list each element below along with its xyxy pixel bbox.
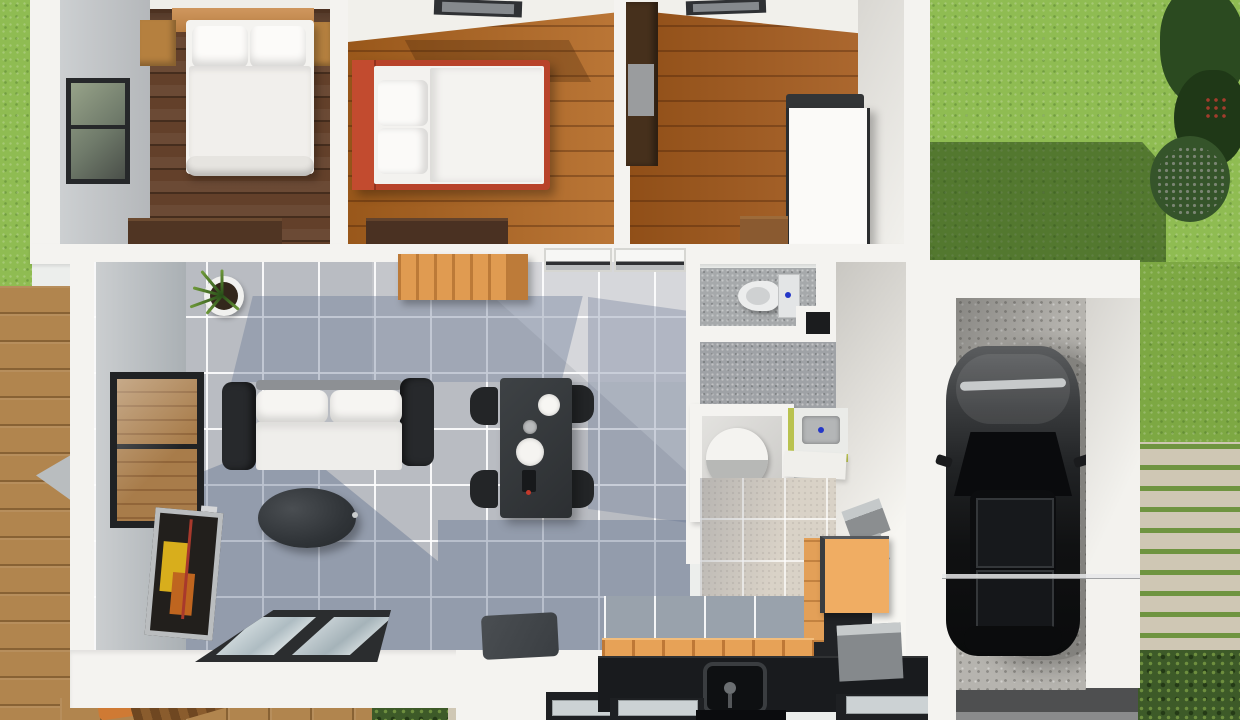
rooflight-bedroom-two: [434, 0, 523, 18]
kitchen-backsplash: [604, 596, 808, 644]
car-rear-window: [964, 626, 1062, 652]
bed-two-duvet: [430, 68, 542, 182]
rooflight-glass: [442, 2, 514, 15]
west-wall-living: [70, 248, 96, 708]
dining-chair-1: [470, 387, 498, 425]
toilet-flush-button: [785, 292, 791, 298]
car-windshield: [954, 432, 1072, 496]
plant-leaf: [221, 270, 224, 296]
console-shelf: [398, 254, 528, 300]
tv-screen: [145, 507, 224, 640]
garage-glass-rail: [942, 574, 1140, 579]
lawn-left-strip: [0, 0, 32, 292]
potted-plant: [194, 266, 250, 322]
living-window-glare: [117, 379, 197, 521]
bed-two-pillow-top: [378, 80, 428, 126]
bed-two-headboard: [352, 60, 376, 190]
toilet-bowl-inner: [746, 287, 770, 305]
kitchen-stool-right-top: [846, 696, 930, 714]
garden-right: [1128, 650, 1240, 720]
plate-large-bottom: [516, 438, 544, 466]
sofa-pillow-left: [256, 390, 328, 424]
coffee-table: [258, 488, 356, 548]
bed-main: [186, 20, 314, 174]
orange-cabinet-box: [820, 536, 889, 613]
sofa-back-bar: [256, 380, 402, 390]
table-caddy-red: [526, 490, 531, 495]
tree-canopy: [1134, 0, 1240, 236]
sofa-arm-left: [222, 382, 256, 470]
cabinet-white: [786, 108, 870, 251]
bed-main-pillow-left: [192, 26, 248, 68]
kitchen-stool-left-top: [618, 700, 698, 716]
west-wall-top: [30, 0, 60, 250]
basin-drain: [818, 427, 824, 433]
console-end-face: [508, 254, 528, 300]
sofa-seat: [256, 422, 402, 470]
bed-two: [352, 60, 550, 190]
bed-main-duvet: [189, 66, 311, 158]
garage-north-wall: [928, 260, 1140, 298]
kitchen-appliance-gray: [837, 622, 904, 681]
bed-main-pillow-right: [250, 26, 306, 68]
wall-bed1-bed2: [330, 0, 348, 252]
sofa: [222, 376, 434, 472]
garage-east-wall-face: [1086, 298, 1140, 688]
bath-ledge: [783, 450, 846, 479]
table-caddy: [522, 470, 536, 492]
window-sash: [71, 125, 125, 129]
lawn-shadow: [928, 142, 1166, 264]
driveway-curb: [928, 712, 1138, 720]
bed-two-pillow-bottom: [378, 128, 428, 174]
car: [946, 340, 1082, 660]
clerestory-window-1: [544, 248, 612, 272]
dining-chair-2: [470, 470, 498, 508]
stone-path-right: [1134, 442, 1240, 654]
kitchen-faucet: [724, 682, 736, 694]
rooflight-glass-2: [693, 2, 759, 12]
wardrobe: [626, 2, 658, 166]
doormat: [481, 612, 559, 660]
clerestory-window-2: [614, 248, 686, 272]
bed-main-foot-roll: [186, 156, 314, 176]
coffee-table-leg: [352, 512, 358, 518]
wardrobe-mirror: [628, 64, 654, 116]
sofa-arm-right: [400, 378, 434, 466]
car-roof-glass-front: [976, 498, 1054, 568]
kitchen-faucet-stem: [728, 694, 732, 708]
lawn-right-strip: [1134, 262, 1240, 444]
tree-twigs: [1156, 146, 1226, 216]
living-window: [110, 372, 204, 528]
cooktop: [696, 710, 786, 720]
shadow-sofa-back: [231, 296, 582, 382]
wc-niche-opening: [806, 312, 830, 334]
nightstand-left: [140, 20, 176, 66]
east-wall: [904, 0, 930, 690]
shower-floor: [700, 342, 838, 408]
bedroom-main-window: [66, 78, 130, 184]
deck-left: [0, 286, 74, 720]
bowl-small: [523, 420, 537, 434]
sofa-pillow-right: [330, 390, 402, 424]
floorplan-render: [0, 0, 1240, 720]
tree-berries: [1204, 96, 1226, 118]
plate-large-top: [538, 394, 560, 416]
shadow-chairs-right: [588, 297, 690, 523]
